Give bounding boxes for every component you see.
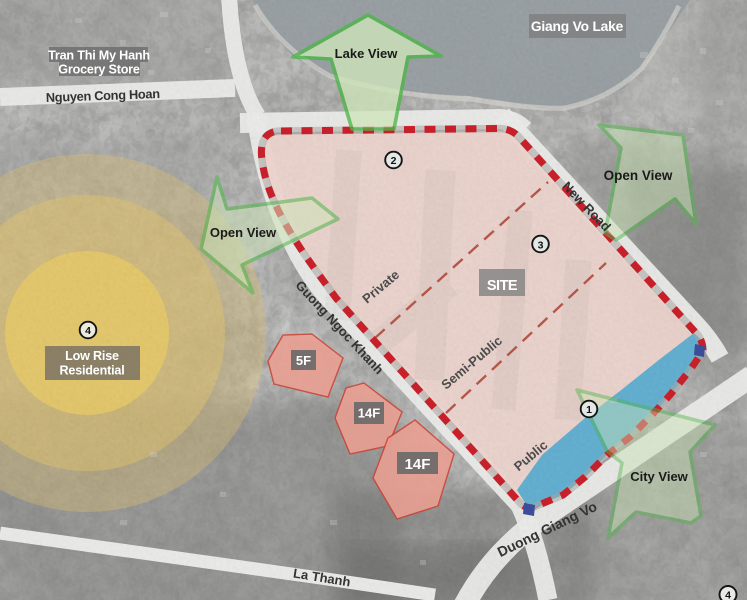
svg-text:Open View: Open View [604, 168, 673, 183]
svg-text:City View: City View [630, 469, 688, 484]
svg-text:2: 2 [391, 155, 397, 167]
svg-text:Lake View: Lake View [335, 46, 399, 61]
svg-text:Giang Vo Lake: Giang Vo Lake [531, 19, 624, 34]
svg-text:Open View: Open View [210, 225, 277, 240]
svg-text:1: 1 [586, 404, 592, 416]
svg-text:SITE: SITE [487, 278, 518, 294]
svg-text:14F: 14F [358, 406, 380, 421]
svg-text:5F: 5F [296, 353, 311, 368]
svg-text:Tran Thi My Hanh: Tran Thi My Hanh [48, 49, 150, 63]
svg-text:Residential: Residential [60, 364, 125, 378]
svg-text:Grocery Store: Grocery Store [58, 63, 140, 77]
svg-text:14F: 14F [405, 456, 431, 473]
svg-text:Low Rise: Low Rise [65, 349, 119, 363]
svg-text:4: 4 [85, 325, 91, 337]
svg-text:3: 3 [538, 240, 544, 252]
svg-text:4: 4 [725, 590, 731, 600]
